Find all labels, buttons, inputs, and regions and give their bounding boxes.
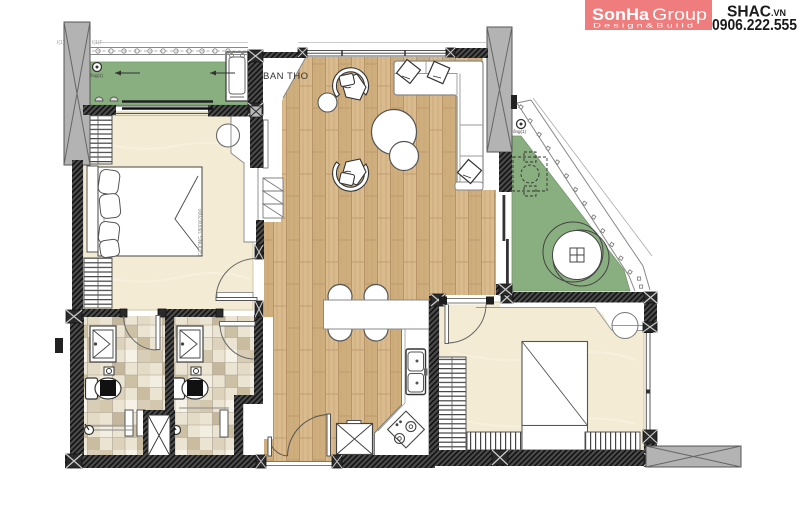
- svg-text:D e s i g n & B u i l d: D e s i g n & B u i l d: [593, 23, 694, 30]
- svg-text:SonHa: SonHa: [592, 5, 650, 24]
- svg-text:ống(1): ống(1): [513, 129, 527, 134]
- svg-text:0906.222.555: 0906.222.555: [712, 17, 797, 34]
- svg-text:I(1)F: I(1)F: [92, 40, 103, 46]
- svg-text:Group: Group: [652, 6, 707, 24]
- svg-text:GIUONG 1800X2000: GIUONG 1800X2000: [198, 209, 204, 256]
- svg-text:ống(1): ống(1): [90, 73, 104, 78]
- svg-text:BAN THO: BAN THO: [263, 71, 309, 82]
